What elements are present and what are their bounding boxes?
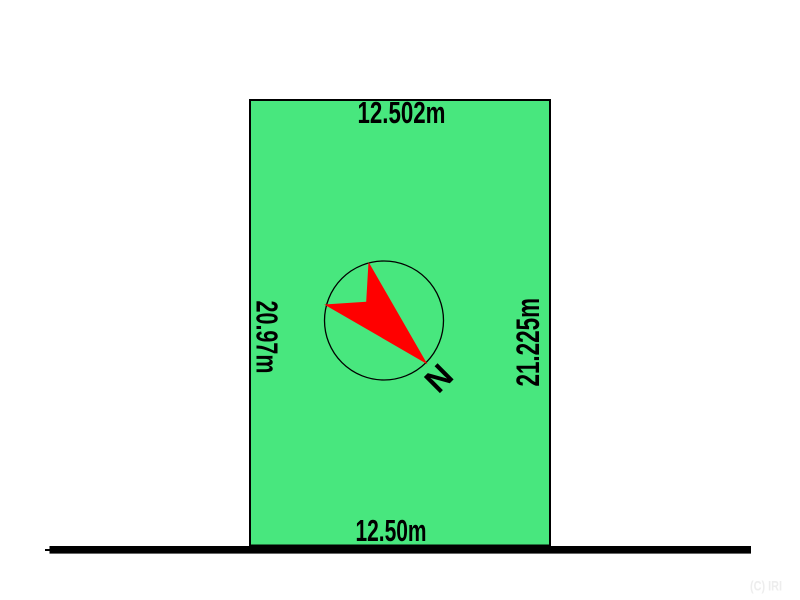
svg-text:(C) IRI: (C) IRI bbox=[750, 578, 782, 594]
svg-text:12.502m: 12.502m bbox=[358, 96, 446, 130]
svg-text:12.50m: 12.50m bbox=[356, 514, 427, 548]
svg-text:20.97m: 20.97m bbox=[250, 301, 284, 374]
svg-text:21.225m: 21.225m bbox=[510, 298, 546, 387]
